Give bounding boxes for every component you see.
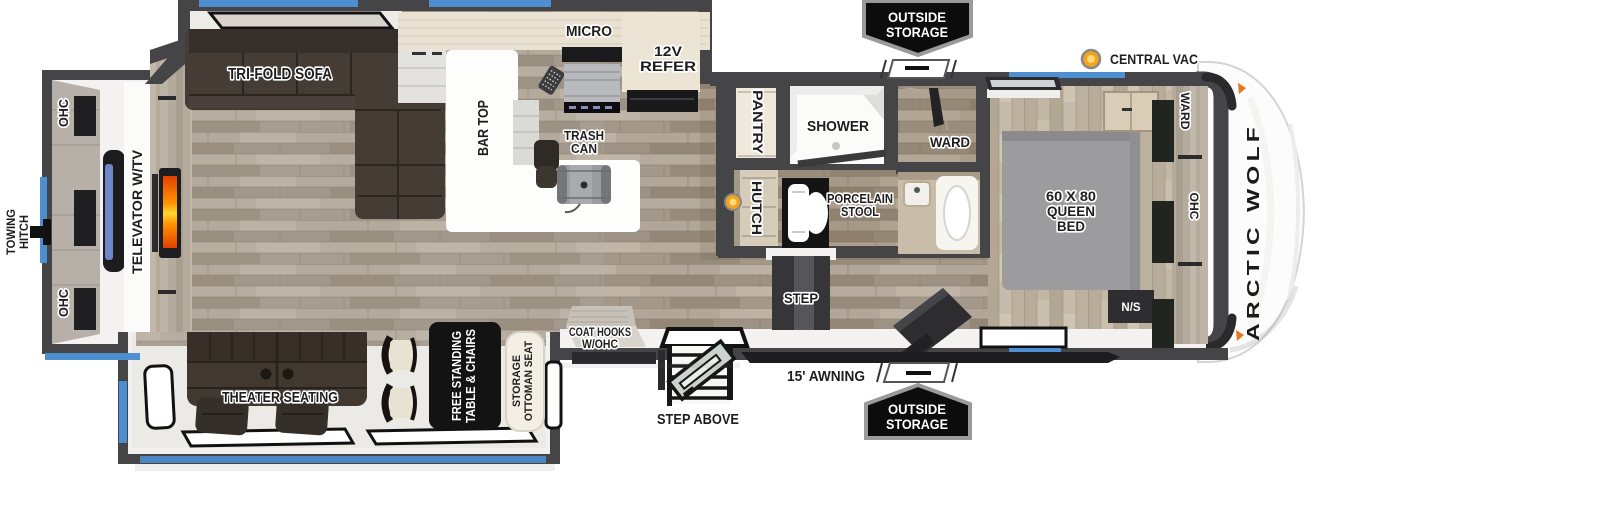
svg-text:STEP: STEP <box>784 291 818 306</box>
svg-text:FREE STANDING: FREE STANDING <box>450 331 464 421</box>
svg-text:W/OHC: W/OHC <box>582 339 618 351</box>
svg-text:STORAGE: STORAGE <box>886 416 948 432</box>
svg-text:CENTRAL VAC: CENTRAL VAC <box>1110 52 1198 67</box>
svg-text:WARD: WARD <box>930 134 970 150</box>
svg-text:ARCTIC WOLF: ARCTIC WOLF <box>1243 123 1263 341</box>
svg-text:REFER: REFER <box>640 58 696 74</box>
svg-text:SHOWER: SHOWER <box>807 118 869 135</box>
svg-text:N/S: N/S <box>1121 302 1141 314</box>
svg-text:15' AWNING: 15' AWNING <box>787 369 865 385</box>
svg-text:MICRO: MICRO <box>566 23 612 40</box>
svg-text:12V: 12V <box>654 43 683 59</box>
svg-text:BAR TOP: BAR TOP <box>475 100 492 156</box>
svg-text:TRI-FOLD SOFA: TRI-FOLD SOFA <box>228 66 332 83</box>
svg-text:OHC: OHC <box>1187 193 1199 220</box>
svg-text:CAN: CAN <box>571 142 597 156</box>
svg-text:OHC: OHC <box>57 99 71 127</box>
svg-text:COAT HOOKS: COAT HOOKS <box>569 327 631 339</box>
svg-text:PANTRY: PANTRY <box>750 90 765 154</box>
svg-text:HUTCH: HUTCH <box>749 181 764 235</box>
svg-text:THEATER SEATING: THEATER SEATING <box>222 389 338 406</box>
svg-text:STEP ABOVE: STEP ABOVE <box>657 412 739 428</box>
svg-text:STORAGE: STORAGE <box>886 24 948 40</box>
svg-text:PORCELAIN: PORCELAIN <box>827 192 893 206</box>
svg-text:BED: BED <box>1057 219 1085 234</box>
svg-text:TABLE & CHAIRS: TABLE & CHAIRS <box>464 329 478 423</box>
svg-text:HITCH: HITCH <box>19 215 31 249</box>
svg-text:QUEEN: QUEEN <box>1047 204 1095 219</box>
svg-text:60 X 80: 60 X 80 <box>1046 189 1096 204</box>
svg-text:TELEVATOR W/TV: TELEVATOR W/TV <box>130 150 145 274</box>
svg-text:OTTOMAN SEAT: OTTOMAN SEAT <box>523 341 535 421</box>
svg-text:TOWING: TOWING <box>6 209 18 255</box>
svg-text:OHC: OHC <box>57 289 71 317</box>
svg-text:OUTSIDE: OUTSIDE <box>888 401 946 417</box>
svg-text:OUTSIDE: OUTSIDE <box>888 9 946 25</box>
svg-text:WARD: WARD <box>1178 93 1190 130</box>
svg-text:TRASH: TRASH <box>564 129 604 143</box>
svg-text:STOOL: STOOL <box>841 205 879 219</box>
svg-text:STORAGE: STORAGE <box>511 355 523 407</box>
